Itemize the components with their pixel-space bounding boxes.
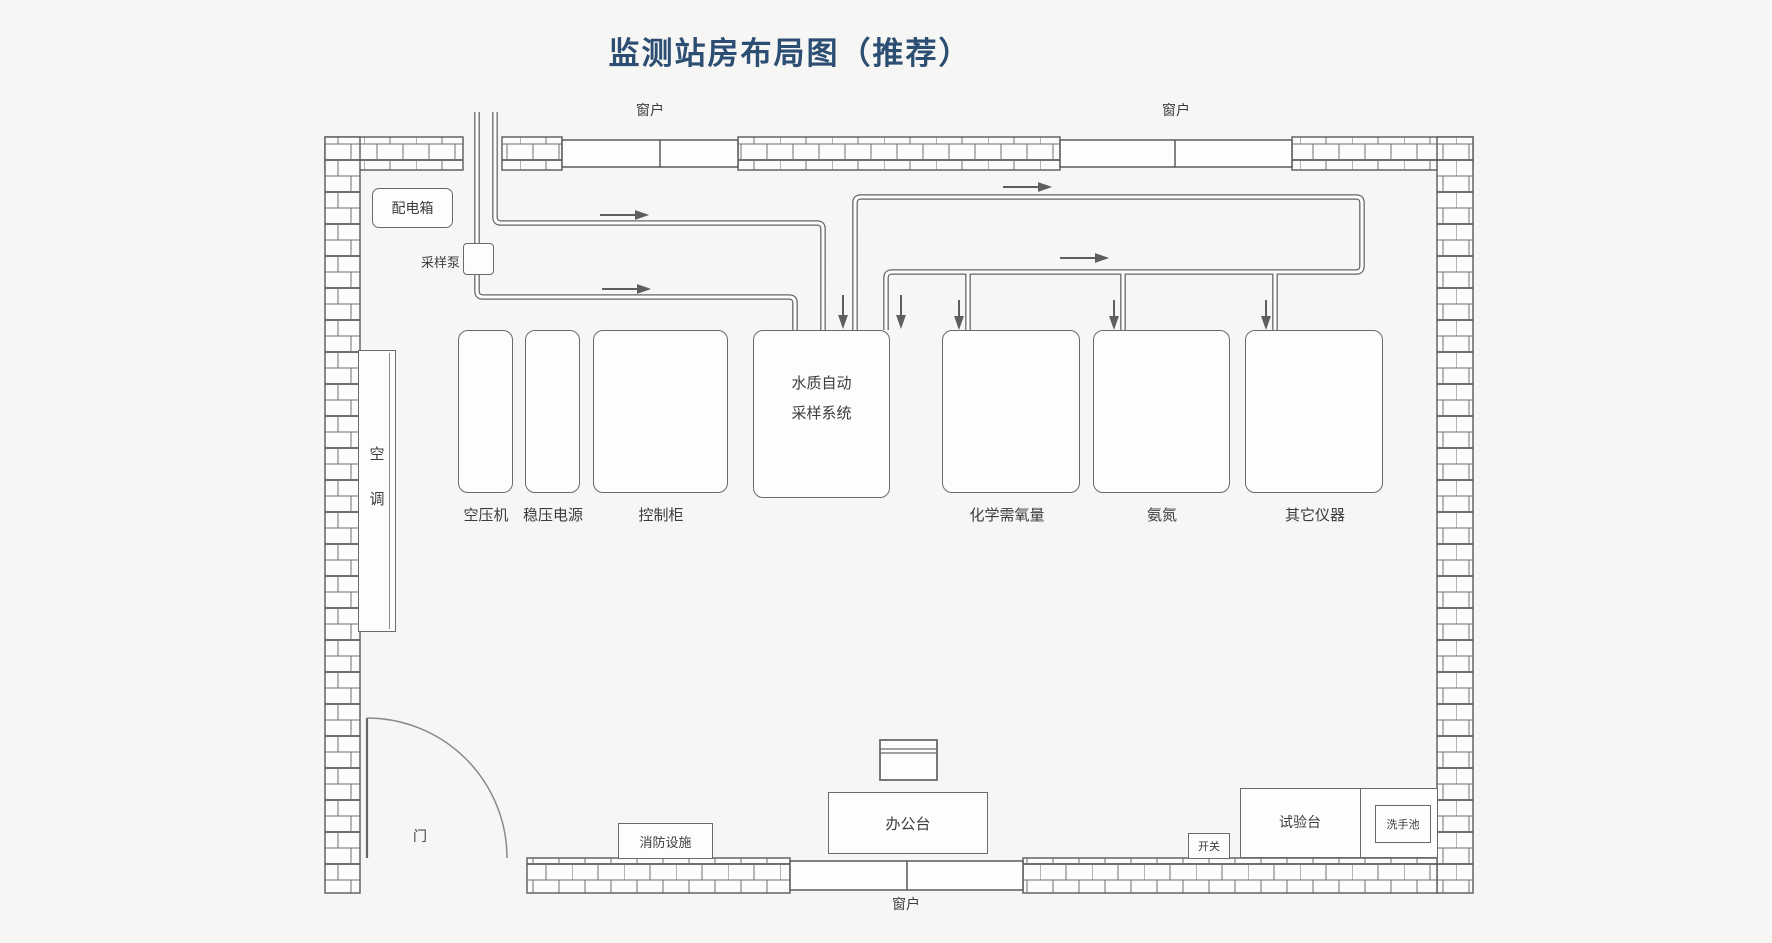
sink: 洗手池 [1375,805,1431,843]
test-bench-label: 试验台 [1279,816,1321,830]
window-label-top-left: 窗户 [636,104,664,118]
air-conditioner: 空调 [358,350,396,632]
other-instruments-label: 其它仪器 [1285,508,1345,523]
air-conditioner-label: 空调 [367,446,388,536]
office-desk-label: 办公台 [885,813,930,834]
flow-arrow-down [1111,300,1118,327]
flow-arrow-down [898,295,905,326]
distribution-box-label: 配电箱 [392,198,434,218]
air-conditioner-panel-line [389,353,390,629]
wall-top-segment-3 [738,137,1060,170]
office-desk: 办公台 [828,792,988,854]
flow-arrow-down [956,300,963,327]
flow-arrow-down [840,295,847,326]
flow-arrow-down [1263,300,1270,327]
water-auto-sampling-system-label-line2: 采样系统 [753,398,890,428]
other-instruments [1245,330,1383,493]
wall-top-segment-2 [502,137,562,170]
flow-arrow-right [1003,184,1049,191]
ammonia-nitrogen-analyzer [1093,330,1230,493]
window-top-right [1060,140,1292,167]
door-swing-arc [367,718,507,858]
sink-label: 洗手池 [1387,816,1420,832]
air-compressor-label: 空压机 [463,508,508,523]
page-title: 监测站房布局图（推荐） [609,28,972,73]
sampling-pump [463,243,494,275]
wall-bottom-segment-2 [1023,858,1437,893]
voltage-stabilizer [525,330,580,493]
chair [880,740,937,780]
floor-plan: 监测站房布局图（推荐） 窗户 窗户 窗户 配电箱 采样泵 空调 空压机 稳压电源… [0,0,1772,943]
water-auto-sampling-system-label-line1: 水质自动 [753,368,890,398]
wall-bottom-segment-1 [527,858,790,893]
ammonia-nitrogen-analyzer-label: 氨氮 [1147,508,1177,523]
distribution-box: 配电箱 [372,188,453,228]
flow-arrow-right [602,286,648,293]
voltage-stabilizer-label: 稳压电源 [523,508,583,523]
control-cabinet [593,330,728,493]
window-top-left [562,140,738,167]
light-switch: 开关 [1188,833,1230,859]
flow-arrow-right [600,212,646,219]
air-compressor [458,330,513,493]
test-bench-divider [1360,789,1361,857]
fire-equipment: 消防设施 [618,823,713,859]
window-label-bottom: 窗户 [892,898,920,912]
cod-analyzer-label: 化学需氧量 [969,508,1044,523]
cod-analyzer [942,330,1080,493]
wall-left [325,137,360,893]
flow-arrows [600,184,1270,328]
door-label: 门 [413,830,427,844]
control-cabinet-label: 控制柜 [638,508,683,523]
flow-arrow-right [1060,255,1106,262]
light-switch-label: 开关 [1198,838,1220,854]
window-label-top-right: 窗户 [1162,104,1190,118]
sampling-pump-label: 采样泵 [421,252,460,271]
fire-equipment-label: 消防设施 [639,832,691,851]
wall-right [1437,137,1473,893]
water-auto-sampling-system-label: 水质自动 采样系统 [753,368,890,428]
